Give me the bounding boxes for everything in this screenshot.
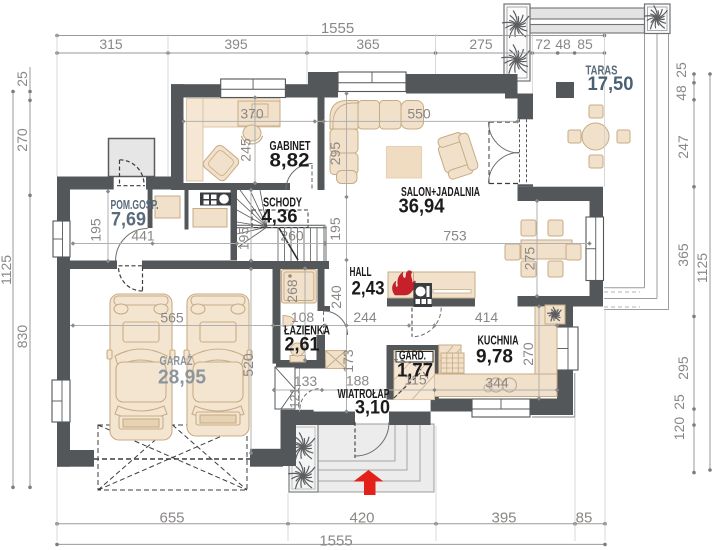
svg-text:28,95: 28,95 <box>158 367 206 389</box>
svg-text:195: 195 <box>327 217 343 241</box>
svg-text:655: 655 <box>159 510 184 527</box>
svg-text:9,78: 9,78 <box>476 347 513 368</box>
svg-text:173: 173 <box>340 349 356 373</box>
svg-text:195: 195 <box>236 227 252 251</box>
svg-text:344: 344 <box>485 375 509 391</box>
svg-text:48: 48 <box>673 85 689 101</box>
svg-text:295: 295 <box>327 142 343 166</box>
svg-text:268: 268 <box>284 279 300 303</box>
svg-text:420: 420 <box>349 510 374 527</box>
svg-text:25: 25 <box>671 394 687 410</box>
svg-text:2,61: 2,61 <box>285 335 320 356</box>
svg-text:25: 25 <box>673 62 689 78</box>
svg-text:1125: 1125 <box>694 253 710 283</box>
svg-text:395: 395 <box>491 510 516 527</box>
svg-text:550: 550 <box>407 106 431 122</box>
svg-text:830: 830 <box>14 325 30 349</box>
svg-text:7,69: 7,69 <box>111 210 146 231</box>
svg-text:260: 260 <box>280 228 304 244</box>
svg-text:240: 240 <box>328 285 344 309</box>
svg-text:36,94: 36,94 <box>399 196 446 218</box>
svg-text:3,10: 3,10 <box>355 398 390 419</box>
svg-text:17,50: 17,50 <box>588 74 634 95</box>
svg-text:565: 565 <box>160 310 184 326</box>
svg-text:295: 295 <box>675 356 691 380</box>
svg-text:1,77: 1,77 <box>397 361 433 382</box>
svg-text:315: 315 <box>99 36 123 52</box>
svg-text:275: 275 <box>469 36 493 52</box>
svg-text:270: 270 <box>14 128 30 152</box>
svg-text:1555: 1555 <box>321 20 354 37</box>
svg-text:1555: 1555 <box>319 533 352 550</box>
svg-text:275: 275 <box>522 247 538 271</box>
svg-text:4,36: 4,36 <box>262 207 298 228</box>
svg-text:365: 365 <box>356 36 380 52</box>
svg-text:120: 120 <box>671 417 687 441</box>
svg-text:520: 520 <box>240 353 256 377</box>
svg-text:370: 370 <box>240 106 264 122</box>
svg-text:395: 395 <box>224 36 248 52</box>
svg-text:753: 753 <box>443 228 467 244</box>
svg-text:244: 244 <box>353 309 377 325</box>
svg-text:85: 85 <box>577 36 593 52</box>
svg-text:KUCHNIA: KUCHNIA <box>478 333 519 348</box>
svg-text:414: 414 <box>475 309 499 325</box>
svg-text:247: 247 <box>675 135 691 159</box>
svg-text:121: 121 <box>288 388 302 409</box>
svg-text:2,43: 2,43 <box>352 279 385 300</box>
svg-text:72: 72 <box>535 36 551 52</box>
svg-text:365: 365 <box>675 243 691 267</box>
svg-text:25: 25 <box>14 71 30 87</box>
svg-text:1125: 1125 <box>0 255 14 285</box>
svg-text:245: 245 <box>238 138 254 162</box>
svg-text:195: 195 <box>88 218 104 242</box>
svg-text:133: 133 <box>294 373 318 389</box>
svg-text:85: 85 <box>576 510 593 527</box>
svg-text:HALL: HALL <box>350 264 372 279</box>
svg-text:8,82: 8,82 <box>270 151 310 172</box>
svg-text:270: 270 <box>520 342 536 366</box>
svg-text:48: 48 <box>555 36 571 52</box>
